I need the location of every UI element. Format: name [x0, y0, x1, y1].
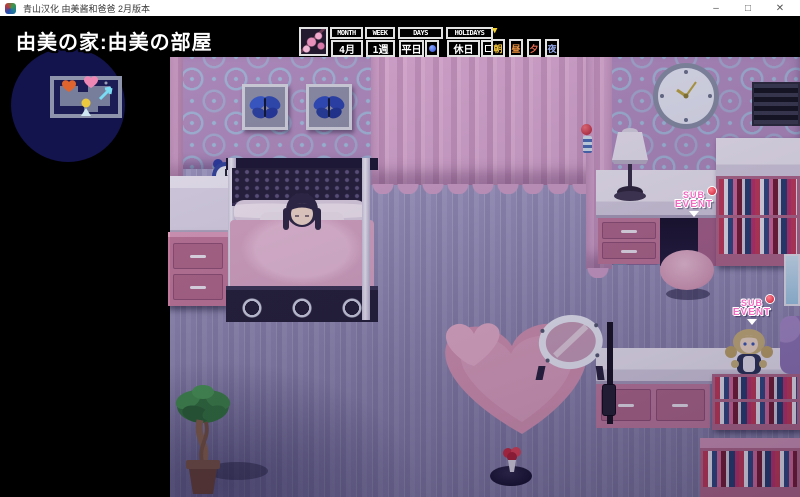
minimap-player-icon [82, 99, 91, 108]
book-row [715, 402, 797, 424]
close-button[interactable]: ✕ [764, 0, 796, 16]
time-morning: 朝 [491, 39, 505, 57]
week-value: 1週 [366, 40, 395, 57]
minimize-button[interactable]: – [700, 0, 732, 16]
potted-plant [166, 380, 240, 497]
calendar-hud: MONTH 4月 WEEK 1週 DAYS 平日 HOLIDAYS 休日 ▼ 朝… [298, 26, 566, 60]
hanging-charm[interactable] [580, 124, 596, 160]
charm-tag-icon [583, 136, 592, 153]
wall-clock [651, 61, 721, 131]
sleeping-girl[interactable] [282, 190, 322, 234]
sub-event-marker-2[interactable]: SUB EVENT [724, 298, 780, 318]
time-night: 夜 [545, 39, 559, 57]
standing-mirror[interactable] [534, 312, 608, 384]
book-row [703, 451, 797, 487]
charm-ball-icon [581, 124, 592, 135]
event-ball-icon [708, 187, 716, 195]
wall-poster [784, 254, 800, 306]
nightstand [170, 176, 234, 234]
butterfly-icon [245, 87, 285, 127]
air-vent [752, 82, 800, 126]
event-pointer-icon [689, 211, 699, 217]
book-row [719, 218, 797, 254]
month-value: 4月 [331, 40, 363, 57]
butterfly-frame-1 [242, 84, 288, 130]
bed-post [362, 158, 370, 320]
blue-dot-icon [429, 45, 436, 52]
bookshelf-top [716, 138, 800, 176]
bookshelf-upper [716, 138, 800, 266]
dresser-left [168, 232, 228, 306]
days-label: DAYS [398, 27, 443, 39]
event-ball-icon [766, 295, 774, 303]
holidays-label: HOLIDAYS [446, 27, 493, 39]
butterfly-icon [309, 87, 349, 127]
sub-event-marker-1[interactable]: SUB EVENT [666, 190, 722, 210]
app-window: 青山汉化 由美酱和爸爸 2月版本 – □ ✕ [0, 0, 800, 497]
drawer [602, 242, 656, 259]
drawer [656, 389, 706, 421]
sub-event-line2: EVENT [666, 200, 722, 210]
drawer [173, 274, 223, 300]
curtain-left-edge [170, 57, 183, 181]
app-icon [5, 3, 16, 14]
bookshelf-corner [700, 438, 800, 497]
holidays-value: 休日 [447, 40, 480, 57]
week-label: WEEK [365, 27, 395, 39]
game-viewport[interactable]: SUB EVENT SUB EVENT 由美の家:由美の部屋 [0, 16, 800, 497]
butterfly-frame-2 [306, 84, 352, 130]
location-label: 由美の家:由美の部屋 [16, 26, 213, 55]
bookshelf-shelves [712, 374, 800, 430]
maximize-button[interactable]: □ [732, 0, 764, 16]
drawer [602, 222, 656, 239]
blonde-doll[interactable] [724, 326, 774, 378]
dresser-mid [598, 218, 660, 264]
window-title: 青山汉化 由美酱和爸爸 2月版本 [23, 2, 150, 15]
event-pointer-icon [747, 319, 757, 325]
window-controls: – □ ✕ [700, 0, 796, 16]
bookshelf-shelves [716, 176, 800, 260]
minimap [8, 46, 128, 164]
ottoman-cushion [660, 250, 714, 290]
bed-footboard [226, 286, 378, 322]
month-label: MONTH [330, 27, 363, 39]
red-bouquet[interactable] [500, 446, 524, 474]
time-noon: 昼 [509, 39, 523, 57]
time-evening: 夕 [527, 39, 541, 57]
table-lamp [608, 126, 652, 202]
book-row [715, 377, 797, 399]
titlebar[interactable]: 青山汉化 由美酱和爸爸 2月版本 – □ ✕ [0, 0, 800, 16]
calendar-sakura-icon [299, 27, 328, 56]
drawer [173, 243, 223, 269]
pink-ottoman [660, 250, 714, 300]
bookshelf-lower [712, 374, 800, 430]
book-row [719, 179, 797, 215]
curtain-main [371, 57, 593, 185]
sub-event-line2: EVENT [724, 308, 780, 318]
days-indicator [425, 40, 439, 57]
current-time-arrow-icon: ▼ [492, 26, 497, 36]
teddy-bear [780, 316, 800, 374]
days-value: 平日 [399, 40, 424, 57]
